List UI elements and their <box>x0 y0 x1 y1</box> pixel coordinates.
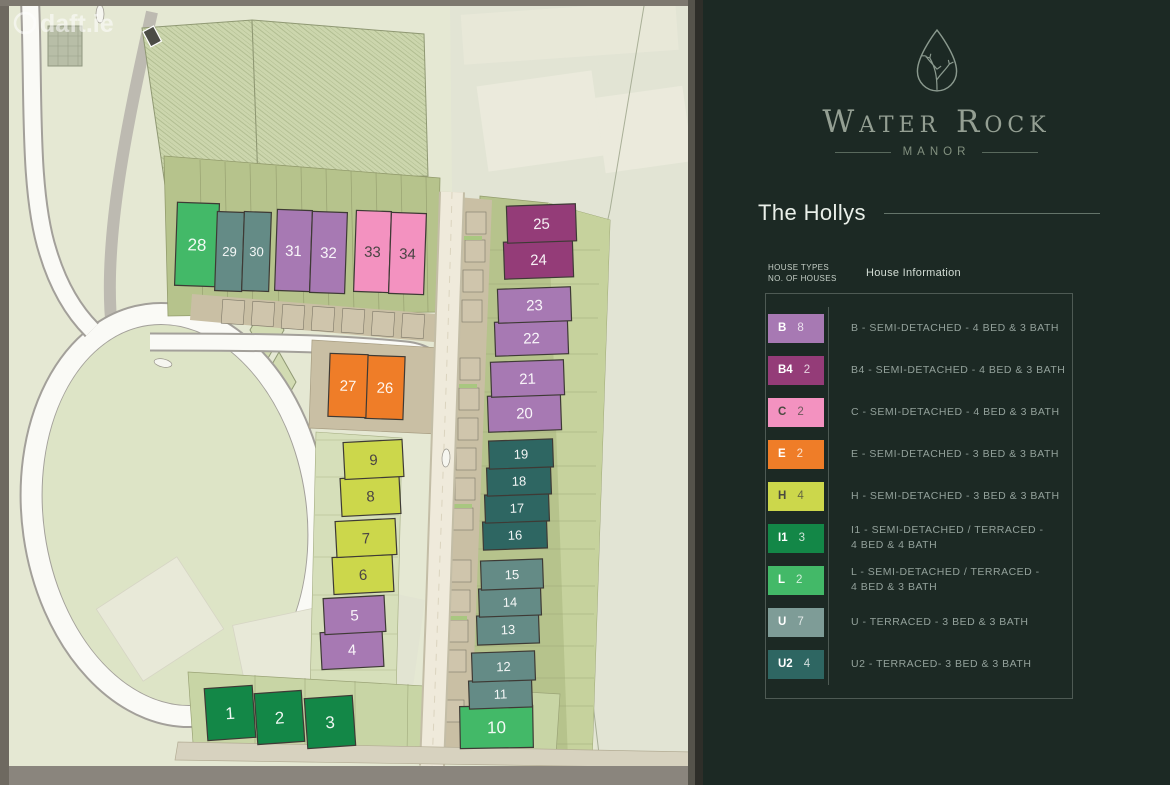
house-number-3: 3 <box>325 713 336 733</box>
house-plot-2[interactable]: 2 <box>254 690 304 744</box>
house-number-12: 12 <box>496 659 511 674</box>
legend-description: L - SEMI-DETACHED / TERRACED -4 BED & 3 … <box>829 565 1040 595</box>
legend-description: B4 - SEMI-DETACHED - 4 BED & 3 BATH <box>829 363 1065 378</box>
house-plot-25[interactable]: 25 <box>506 204 576 243</box>
house-plot-34[interactable]: 34 <box>389 212 427 294</box>
legend-row-E: E2E - SEMI-DETACHED - 3 BED & 3 BATH <box>766 433 1072 475</box>
legend-row-H: H4H - SEMI-DETACHED - 3 BED & 3 BATH <box>766 475 1072 517</box>
house-number-6: 6 <box>358 567 367 584</box>
house-plot-5[interactable]: 5 <box>323 595 386 634</box>
house-plot-16[interactable]: 16 <box>483 520 548 550</box>
house-plot-22[interactable]: 22 <box>494 320 568 357</box>
house-plot-3[interactable]: 3 <box>304 695 355 748</box>
legend-header: HOUSE TYPES NO. OF HOUSES House Informat… <box>768 262 1170 284</box>
legend-house-count: 2 <box>796 574 802 586</box>
hatched-area <box>252 20 428 180</box>
legend-type-label: I1 <box>778 532 788 544</box>
legend-type-label: U <box>778 616 786 628</box>
house-number-17: 17 <box>510 500 525 515</box>
house-number-29: 29 <box>222 244 237 259</box>
house-number-27: 27 <box>339 378 356 396</box>
legend-row-U2: U24U2 - TERRACED- 3 BED & 3 BATH <box>766 643 1072 685</box>
legend-house-count: 3 <box>799 532 805 544</box>
legend-swatch-H: H4 <box>768 482 824 511</box>
section-header: The Hollys <box>758 200 1100 226</box>
legend-row-L: L2L - SEMI-DETACHED / TERRACED -4 BED & … <box>766 559 1072 601</box>
brand-subtitle: MANOR <box>903 146 971 158</box>
house-plot-6[interactable]: 6 <box>332 554 394 594</box>
legend-swatch-U: U7 <box>768 608 824 637</box>
legend-row-B4: B42B4 - SEMI-DETACHED - 4 BED & 3 BATH <box>766 349 1072 391</box>
site-plan-map: 1234567891011121314151617181920212223242… <box>0 0 695 785</box>
legend-row-U: U7U - TERRACED - 3 BED & 3 BATH <box>766 601 1072 643</box>
legend-house-count: 7 <box>797 616 803 628</box>
house-plot-27[interactable]: 27 <box>328 353 368 417</box>
house-plot-21[interactable]: 21 <box>490 360 564 398</box>
house-number-23: 23 <box>526 297 543 315</box>
legend-col1-line1: HOUSE TYPES <box>768 262 866 273</box>
subtitle-rule-left <box>835 152 891 153</box>
legend-swatch-cell: E2 <box>766 433 829 475</box>
house-plot-33[interactable]: 33 <box>354 210 392 292</box>
legend-swatch-cell: C2 <box>766 391 829 433</box>
legend-swatch-L: L2 <box>768 566 824 595</box>
legend-type-label: E <box>778 448 786 460</box>
house-plot-12[interactable]: 12 <box>472 651 536 682</box>
legend-col2-header: House Information <box>866 267 961 279</box>
house-plot-15[interactable]: 15 <box>481 559 544 590</box>
house-number-1: 1 <box>225 704 236 724</box>
legend-description: I1 - SEMI-DETACHED / TERRACED -4 BED & 4… <box>829 523 1043 553</box>
legend-table: B8B - SEMI-DETACHED - 4 BED & 3 BATHB42B… <box>765 293 1073 699</box>
house-plot-28[interactable]: 28 <box>175 202 220 286</box>
house-plot-23[interactable]: 23 <box>497 287 571 324</box>
legend-swatch-cell: B8 <box>766 307 829 349</box>
legend-house-count: 4 <box>804 658 810 670</box>
house-number-26: 26 <box>376 380 393 398</box>
waterrock-logo-icon <box>912 28 962 101</box>
site-plan-svg: 1234567891011121314151617181920212223242… <box>0 0 695 785</box>
house-plot-26[interactable]: 26 <box>365 355 405 419</box>
legend-col1-line2: NO. OF HOUSES <box>768 273 866 284</box>
legend-type-label: C <box>778 406 786 418</box>
legend-swatch-cell: U7 <box>766 601 829 643</box>
house-plot-30[interactable]: 30 <box>242 212 272 292</box>
house-plot-8[interactable]: 8 <box>340 475 401 516</box>
legend-type-label: L <box>778 574 785 586</box>
house-plot-24[interactable]: 24 <box>503 240 573 279</box>
brand-name: Water Rock <box>703 105 1170 139</box>
house-plot-17[interactable]: 17 <box>485 493 550 523</box>
legend-house-count: 2 <box>797 406 803 418</box>
house-number-8: 8 <box>366 488 375 505</box>
legend-swatch-cell: I13 <box>766 517 829 559</box>
house-plot-29[interactable]: 29 <box>215 212 245 292</box>
section-title: The Hollys <box>758 200 866 226</box>
house-number-33: 33 <box>364 244 381 262</box>
map-frame-left <box>0 0 9 785</box>
legend-swatch-cell: U24 <box>766 643 829 685</box>
map-frame-right <box>688 0 695 785</box>
house-number-28: 28 <box>187 235 207 255</box>
house-number-7: 7 <box>361 530 370 547</box>
legend-swatch-cell: L2 <box>766 559 829 601</box>
house-plot-9[interactable]: 9 <box>343 439 404 479</box>
house-number-30: 30 <box>249 244 264 259</box>
house-number-9: 9 <box>369 452 378 469</box>
legend-type-label: B <box>778 322 786 334</box>
legend-description: U - TERRACED - 3 BED & 3 BATH <box>829 615 1028 630</box>
legend-house-count: 4 <box>797 490 803 502</box>
house-number-34: 34 <box>399 246 416 264</box>
watermark-text: daft.ie <box>40 10 114 38</box>
legend-swatch-B4: B42 <box>768 356 824 385</box>
legend-description: H - SEMI-DETACHED - 3 BED & 3 BATH <box>829 489 1060 504</box>
legend-house-count: 2 <box>804 364 810 376</box>
legend-house-count: 2 <box>797 448 803 460</box>
legend-swatch-B: B8 <box>768 314 824 343</box>
legend-row-C: C2C - SEMI-DETACHED - 4 BED & 3 BATH <box>766 391 1072 433</box>
legend-row-B: B8B - SEMI-DETACHED - 4 BED & 3 BATH <box>766 307 1072 349</box>
house-number-18: 18 <box>512 473 527 488</box>
house-number-21: 21 <box>519 371 536 389</box>
house-plot-32[interactable]: 32 <box>310 211 348 293</box>
house-plot-31[interactable]: 31 <box>275 209 313 291</box>
legend-swatch-cell: B42 <box>766 349 829 391</box>
legend-type-label: B4 <box>778 364 793 376</box>
house-number-11: 11 <box>493 686 507 701</box>
house-plot-14[interactable]: 14 <box>479 587 542 617</box>
legend-description: E - SEMI-DETACHED - 3 BED & 3 BATH <box>829 447 1059 462</box>
house-number-16: 16 <box>508 527 523 542</box>
house-plot-19[interactable]: 19 <box>489 439 554 469</box>
house-number-24: 24 <box>530 252 547 270</box>
legend-description: U2 - TERRACED- 3 BED & 3 BATH <box>829 657 1031 672</box>
house-number-5: 5 <box>350 607 359 624</box>
legend-swatch-U2: U24 <box>768 650 824 679</box>
house-number-32: 32 <box>320 245 337 263</box>
legend-swatch-I1: I13 <box>768 524 824 553</box>
house-plot-7[interactable]: 7 <box>335 518 397 557</box>
legend-swatch-cell: H4 <box>766 475 829 517</box>
legend-type-label: U2 <box>778 658 793 670</box>
house-plot-18[interactable]: 18 <box>487 466 552 496</box>
house-number-14: 14 <box>503 594 518 609</box>
info-panel: Water Rock MANOR The Hollys HOUSE TYPES … <box>703 0 1170 785</box>
map-frame-bottom <box>0 766 695 785</box>
legend-type-label: H <box>778 490 786 502</box>
house-number-15: 15 <box>505 567 520 582</box>
house-number-13: 13 <box>501 622 516 637</box>
legend-house-count: 8 <box>797 322 803 334</box>
legend-swatch-E: E2 <box>768 440 824 469</box>
house-number-2: 2 <box>274 708 285 728</box>
house-plot-10[interactable]: 10 <box>460 705 534 748</box>
house-number-4: 4 <box>347 642 356 659</box>
map-panel-divider <box>695 0 703 785</box>
house-plot-1[interactable]: 1 <box>204 685 256 740</box>
house-plot-4[interactable]: 4 <box>320 629 384 669</box>
subtitle-rule-right <box>982 152 1038 153</box>
house-number-22: 22 <box>523 330 540 348</box>
legend-row-I1: I13I1 - SEMI-DETACHED / TERRACED -4 BED … <box>766 517 1072 559</box>
legend-swatch-C: C2 <box>768 398 824 427</box>
house-plot-20[interactable]: 20 <box>487 394 561 433</box>
house-number-10: 10 <box>487 718 506 737</box>
legend-description: C - SEMI-DETACHED - 4 BED & 3 BATH <box>829 405 1060 420</box>
house-number-25: 25 <box>533 216 550 234</box>
section-rule <box>884 213 1100 214</box>
house-number-31: 31 <box>285 243 302 261</box>
house-number-19: 19 <box>514 446 529 461</box>
brand-subtitle-row: MANOR <box>703 146 1170 158</box>
legend-description: B - SEMI-DETACHED - 4 BED & 3 BATH <box>829 321 1059 336</box>
house-plot-13[interactable]: 13 <box>477 614 540 645</box>
map-frame-top <box>0 0 695 6</box>
house-number-20: 20 <box>516 405 533 423</box>
legend-col1-header: HOUSE TYPES NO. OF HOUSES <box>768 262 866 284</box>
house-plot-11[interactable]: 11 <box>469 679 533 709</box>
